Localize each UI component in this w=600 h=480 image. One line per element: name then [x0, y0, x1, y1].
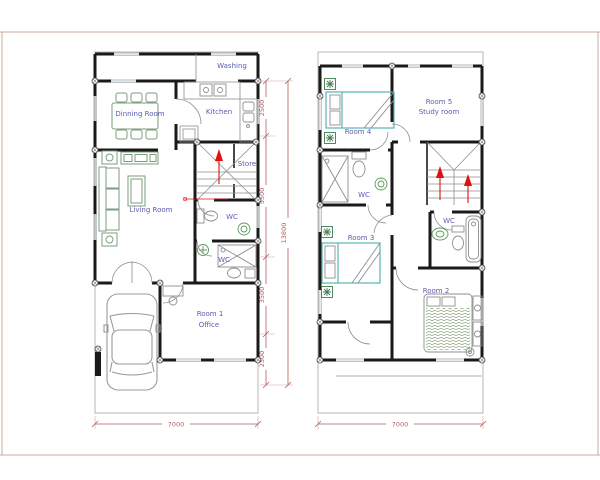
floor-plan-sheet: Washing Dinning Room Kitchen Store Livin… [0, 0, 600, 480]
room3-door [374, 215, 392, 233]
plant-icon [325, 79, 336, 90]
label-room3: Room 3 [348, 234, 375, 242]
label-office: Office [199, 321, 219, 329]
upper-floor-plan: Room 4 Room 5 Study room WC Room 3 WC Ro… [315, 52, 486, 429]
label-kitchen: Kitchen [206, 108, 232, 116]
room4-door [370, 132, 388, 150]
car [104, 294, 160, 390]
room5-door [392, 124, 410, 142]
dim-mid-section: 5500 [258, 188, 266, 205]
label-study-room: Study room [419, 108, 460, 116]
label-room4: Room 4 [345, 128, 372, 136]
wc-left-door [368, 205, 386, 223]
living-room-sofa-set [99, 151, 158, 246]
dim-total-depth: 13800 [280, 223, 288, 244]
label-wc-left: WC [358, 191, 370, 199]
dim-front-section: 2300 [258, 351, 266, 368]
plant-icon [322, 227, 333, 238]
wc-left-fixtures [322, 152, 387, 202]
stair-up-arrow-icon [464, 174, 472, 186]
wc-upper-door [198, 200, 214, 216]
plant-icon [322, 287, 333, 298]
stair-up-arrow-icon [215, 149, 223, 161]
balcony-door [348, 322, 370, 344]
floor-plan-drawing: Washing Dinning Room Kitchen Store Livin… [0, 0, 600, 480]
office-desk [163, 286, 183, 305]
stair-up-arrow-icon [436, 166, 444, 178]
label-wc-right: WC [443, 217, 455, 225]
label-washing: Washing [217, 62, 247, 70]
dim-lower-section: 3500 [258, 287, 266, 304]
sheet-border [0, 32, 600, 455]
entrance-double-door [112, 262, 152, 283]
room3-bed [322, 243, 380, 283]
ground-floor-plan: Washing Dinning Room Kitchen Store Livin… [92, 52, 293, 429]
label-dinning-room: Dinning Room [115, 110, 164, 118]
room2-door [396, 268, 418, 290]
label-room5: Room 5 [426, 98, 453, 106]
upper-stairs [427, 142, 481, 205]
dim-upper-width: 7000 [392, 421, 409, 429]
kitchen-door [176, 99, 201, 124]
label-store: Store [238, 160, 257, 168]
dim-top-section: 2500 [258, 100, 266, 117]
plant-icon [325, 133, 336, 144]
label-wc-lower: WC [218, 256, 230, 264]
room2-bed [424, 294, 472, 352]
label-living-room: Living Room [130, 206, 173, 214]
upper-dimensions: 7000 [315, 416, 486, 429]
wc-right-fixtures [432, 216, 481, 262]
gate-pillar [95, 352, 101, 376]
dim-ground-width: 7000 [168, 421, 185, 429]
label-wc-upper: WC [226, 213, 238, 221]
label-room1: Room 1 [197, 310, 224, 318]
ground-dimensions: 2500 5500 3500 2300 13800 7000 [92, 78, 293, 429]
room4-bed [326, 92, 394, 128]
